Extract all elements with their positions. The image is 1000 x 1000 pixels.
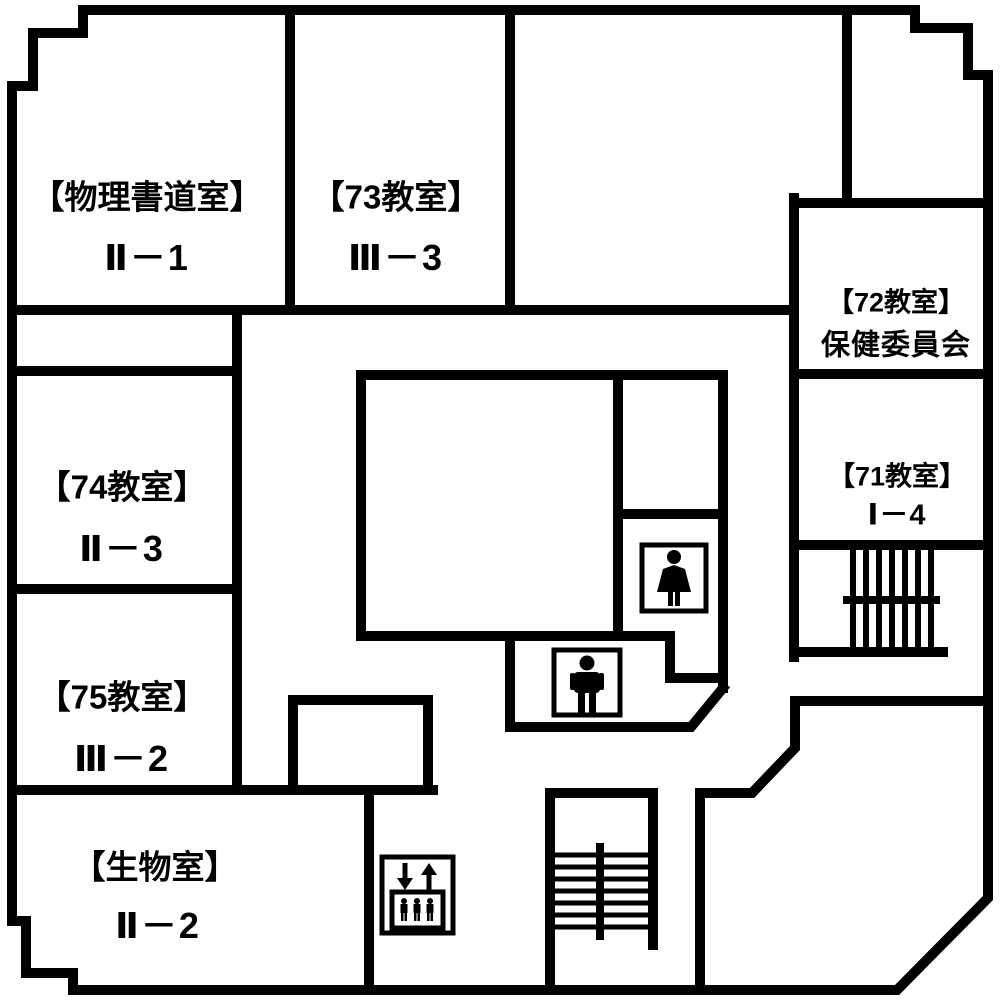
room-biology-name: 【生物室】 — [73, 851, 238, 884]
room-74-name: 【74教室】 — [38, 471, 207, 504]
stairs-lower-icon — [555, 843, 648, 940]
room-75-name: 【75教室】 — [38, 681, 207, 714]
room-74-class: Ⅱ－3 — [79, 531, 165, 567]
room-biology-class: Ⅱ－2 — [115, 908, 201, 944]
room-72-class: 保健委員会 — [821, 332, 971, 361]
womens-room-step-wall — [670, 636, 723, 678]
stairs-upper-icon — [843, 550, 940, 650]
room-75-class: Ⅲ－2 — [74, 741, 170, 777]
room-73-class: Ⅲ－3 — [348, 240, 444, 276]
man-icon — [554, 650, 620, 715]
room-73-name: 【73教室】 — [312, 181, 481, 214]
room-71-class: Ⅰ－4 — [868, 502, 927, 531]
floor-plan: 【物理書道室】 Ⅱ－1 【73教室】 Ⅲ－3 【72教室】 保健委員会 【71教… — [0, 0, 1000, 1000]
room-72-name: 【72教室】 — [827, 290, 965, 317]
room-physics-calligraphy-name: 【物理書道室】 — [32, 181, 263, 214]
woman-icon — [642, 545, 706, 611]
room-71-name: 【71教室】 — [828, 464, 966, 491]
room-physics-calligraphy-class: Ⅱ－1 — [104, 240, 190, 276]
small-room-walls — [293, 700, 428, 790]
south-corridor-wall — [700, 701, 795, 990]
elevator-icon — [382, 857, 453, 933]
